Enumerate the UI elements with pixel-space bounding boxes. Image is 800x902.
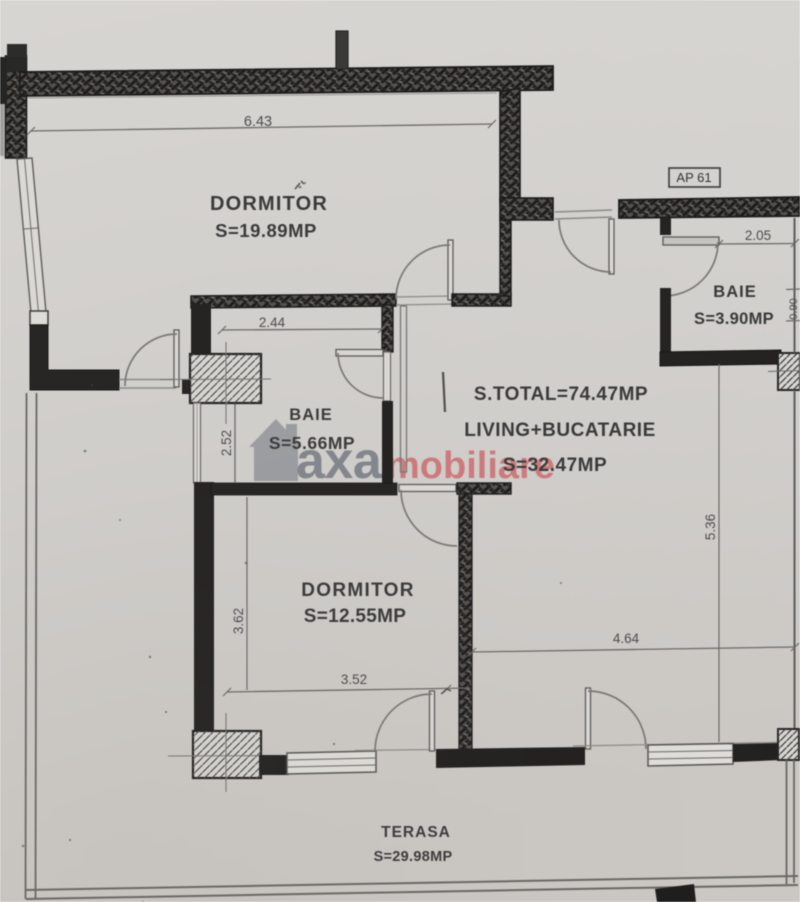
svg-text:DORMITOR: DORMITOR xyxy=(210,193,328,215)
svg-text:S=29.98MP: S=29.98MP xyxy=(374,849,453,865)
svg-text:S=5.66MP: S=5.66MP xyxy=(269,433,355,453)
svg-text:S=3.90MP: S=3.90MP xyxy=(694,310,774,328)
svg-text:2.52: 2.52 xyxy=(219,430,234,456)
svg-text:3.52: 3.52 xyxy=(341,672,367,687)
svg-text:BAIE: BAIE xyxy=(713,283,756,301)
svg-text:S=19.89MP: S=19.89MP xyxy=(215,220,317,241)
svg-text:BAIE: BAIE xyxy=(289,406,332,424)
svg-text:AP 61: AP 61 xyxy=(676,170,711,185)
svg-text:S.TOTAL=74.47MP: S.TOTAL=74.47MP xyxy=(474,384,648,405)
svg-text:TERASA: TERASA xyxy=(381,824,451,841)
svg-text:2.44: 2.44 xyxy=(259,315,286,330)
svg-text:0.90: 0.90 xyxy=(788,298,800,319)
svg-text:LIVING+BUCATARIE: LIVING+BUCATARIE xyxy=(464,420,656,441)
svg-text:4.64: 4.64 xyxy=(613,631,640,646)
svg-text:2.05: 2.05 xyxy=(745,228,771,243)
svg-text:3.62: 3.62 xyxy=(231,608,246,634)
svg-text:DORMITOR: DORMITOR xyxy=(301,580,415,601)
svg-text:5.36: 5.36 xyxy=(703,514,718,540)
svg-text:S=12.55MP: S=12.55MP xyxy=(304,606,407,627)
svg-text:S=32.47MP: S=32.47MP xyxy=(503,455,607,476)
